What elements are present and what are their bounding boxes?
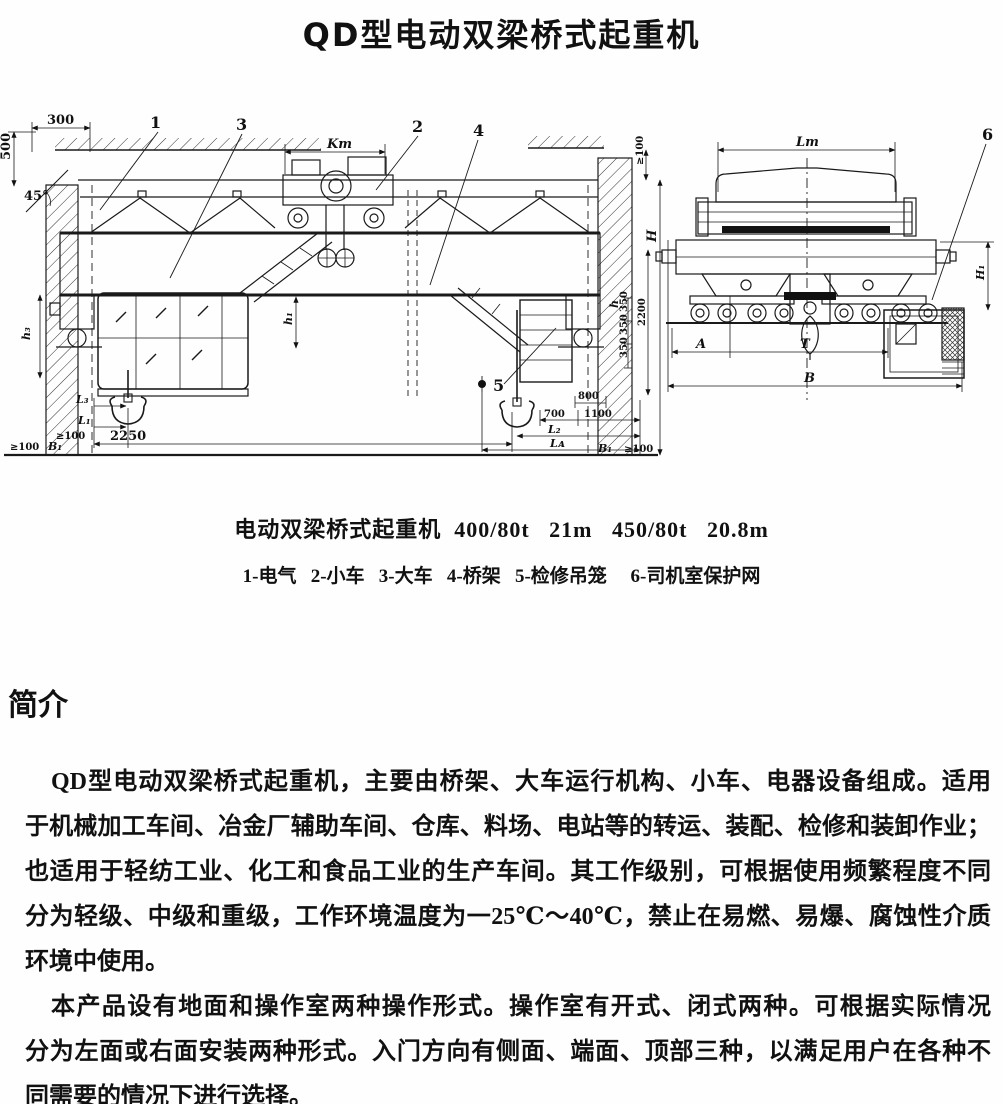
section-heading-intro: 简介: [8, 680, 68, 724]
crane-drawing-svg: Kт: [0, 100, 1003, 470]
crane-technical-drawing: Kт: [0, 100, 1003, 470]
document-page: QD型电动双梁桥式起重机: [0, 0, 1003, 1104]
dim-L1-label: L₁: [77, 414, 91, 427]
intro-paragraphs: QD型电动双梁桥式起重机，主要由桥架、大车运行机构、小车、电器设备组成。适用于机…: [25, 760, 991, 1104]
dim-h3-label: h₃: [20, 327, 33, 340]
callout-1: 1: [150, 113, 161, 132]
dim-L3-label: L₃: [75, 393, 89, 406]
dim-ge100-br-label: ≥100: [624, 444, 653, 455]
dim-B1-left-label: B₁: [47, 440, 62, 453]
callout-3: 3: [236, 115, 247, 134]
dim-1100-label: 1100: [584, 409, 612, 420]
figure-legend: 1-电气 2-小车 3-大车 4-桥架 5-检修吊笼 6-司机室保护网: [0, 561, 1003, 588]
dim-350-label-1: 350: [619, 291, 630, 312]
main-hook: [110, 310, 534, 427]
dim-ge100-top-label: ≥100: [635, 136, 646, 165]
dim-700-label: 700: [544, 409, 565, 420]
service-cage: [450, 288, 572, 382]
dims-bottom-left: L₃ L₁ ≥100 2250 ≥100 B₁: [10, 393, 512, 453]
dim-350-label-2: 350: [619, 314, 630, 335]
body-text-line: QD型电动双梁桥式起重机，主要由桥架、大车运行机构、小车、电器设备组成。适用: [25, 760, 991, 805]
dim-2200-label: 2200: [637, 298, 648, 326]
dim-800-label: 800: [578, 391, 599, 402]
dim-h1-label: h₁: [282, 312, 295, 325]
dim-500-label: 500: [0, 133, 14, 160]
callout-4: 4: [473, 121, 484, 140]
dim-kt-label: Kт: [326, 137, 352, 152]
elevation-view: Kт: [0, 113, 660, 455]
dim-LT: Lт: [718, 135, 895, 192]
figure-caption: 电动双梁桥式起重机 400/80t 21m 450/80t 20.8m: [0, 512, 1003, 544]
trolley: [283, 157, 393, 267]
dim-T-label: T: [800, 337, 811, 352]
body-text-line: 同需要的情况下进行选择。: [25, 1075, 991, 1104]
body-text-line: 本产品设有地面和操作室两种操作形式。操作室有开式、闭式两种。可根据实际情况: [25, 985, 991, 1030]
dim-L2-label: L₂: [547, 423, 561, 436]
body-text-line: 分为轻级、中级和重级，工作环境温度为一25℃～40℃，禁止在易燃、易爆、腐蚀性介…: [25, 895, 991, 940]
end-view-trolley: [696, 168, 916, 236]
dim-2250-label: 2250: [110, 429, 146, 444]
callout-6: 6: [982, 125, 993, 144]
body-text-line: 于机械加工车间、冶金厂辅助车间、仓库、料场、电站等的转运、装配、检修和装卸作业；: [25, 805, 991, 850]
dim-LA-label: Lᴀ: [549, 437, 565, 450]
dim-H1-label: H₁: [974, 265, 987, 281]
dim-A-label: A: [694, 337, 706, 352]
dim-B1-right-label: B₁: [597, 442, 612, 455]
body-text-line: 环境中使用。: [25, 940, 991, 985]
body-text-line: 也适用于轻纺工业、化工和食品工业的生产车间。其工作级别，可根据使用频繁程度不同: [25, 850, 991, 895]
body-text-line: 分为左面或右面安装两种形式。入门方向有侧面、端面、顶部三种，以满足用户在各种不: [25, 1030, 991, 1075]
dim-LT-label: Lт: [795, 135, 819, 150]
end-view: Lт: [656, 125, 994, 400]
callout-5: 5: [493, 376, 504, 395]
callout-leaders: 1 3 2 4 5: [100, 113, 556, 395]
dim-H-label: H: [645, 229, 660, 243]
dim-45-label: 45°: [24, 189, 49, 204]
page-title: QD型电动双梁桥式起重机: [0, 10, 1003, 56]
dim-B-label: B: [803, 371, 815, 386]
dim-300-label: 300: [47, 113, 74, 128]
dim-ge100-bl-label: ≥100: [10, 442, 39, 453]
cab-and-mesh: 6: [884, 125, 993, 378]
callout-2: 2: [412, 117, 423, 136]
bridge-girder: [50, 180, 604, 400]
operator-cabin: [98, 233, 332, 396]
dim-350-label-3: 350: [619, 337, 630, 358]
